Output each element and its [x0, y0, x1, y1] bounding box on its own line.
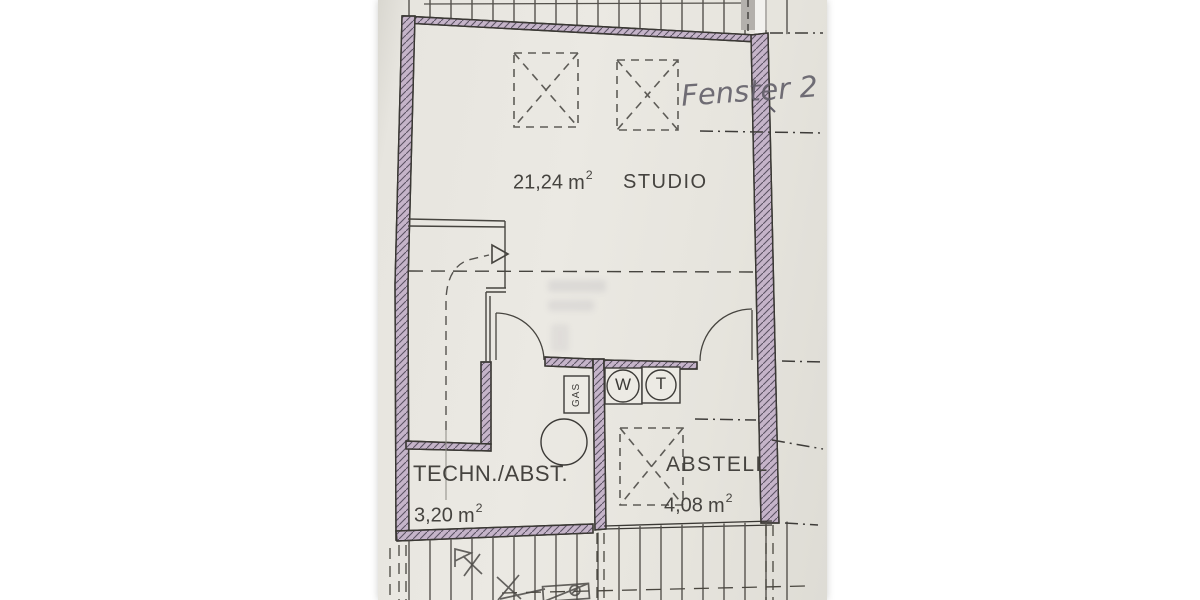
screenshot-root: 21,24m2 STUDIO TECHN./ABST. 3,20m2 ABSTE… — [0, 0, 1200, 600]
room-area-techn-abst: 3,20m2 — [414, 503, 482, 528]
wall-stairwell-bottom — [406, 441, 491, 451]
bleedthrough-smudge — [548, 300, 594, 311]
area-exponent: 2 — [726, 491, 733, 505]
headroom-dashed-line — [409, 271, 753, 272]
dryer-letter: T — [644, 374, 678, 394]
area-value: 4,08 — [664, 495, 703, 517]
wall-interior-horizontal-left — [545, 357, 593, 368]
room-label-studio: STUDIO — [623, 171, 708, 194]
area-unit: m — [458, 505, 475, 527]
gas-label: GAS — [565, 377, 588, 413]
boiler-circle — [541, 419, 587, 465]
room-label-abstell: ABSTELL — [666, 453, 769, 477]
area-unit: m — [568, 172, 585, 194]
floorplan-drawing — [0, 0, 1200, 600]
washer-letter: W — [606, 375, 640, 395]
wall-divider-vertical — [593, 359, 606, 530]
area-value: 21,24 — [513, 172, 563, 194]
pencil-tick — [770, 107, 775, 112]
wall-stairwell-vertical — [481, 362, 491, 444]
skylight-box-1 — [514, 53, 578, 127]
door-arc-left — [496, 313, 544, 360]
bleedthrough-smudge — [551, 324, 569, 352]
wall-left — [395, 16, 415, 540]
area-value: 3,20 — [414, 505, 453, 527]
room-area-studio: 21,24m2 — [513, 170, 592, 195]
area-exponent: 2 — [586, 168, 593, 182]
skylight-box-2 — [617, 60, 678, 130]
area-unit: m — [708, 495, 725, 517]
doors — [496, 309, 752, 361]
room-area-abstell: 4,08m2 — [664, 493, 732, 518]
bleedthrough-smudge — [548, 280, 606, 292]
area-exponent: 2 — [476, 501, 483, 515]
room-label-techn-abst: TECHN./ABST. — [413, 461, 568, 487]
door-arc-right — [700, 309, 752, 361]
